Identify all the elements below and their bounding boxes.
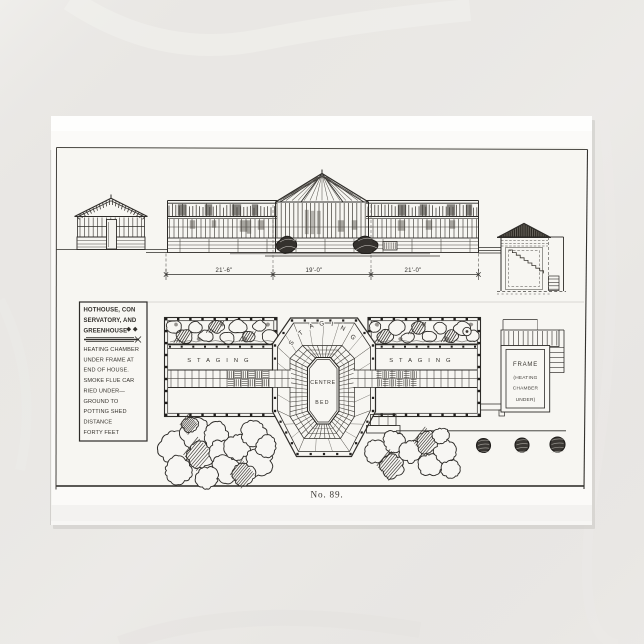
- svg-text:UNDER): UNDER): [516, 397, 536, 403]
- svg-text:HEATING CHAMBER: HEATING CHAMBER: [84, 347, 139, 353]
- svg-text:UNDER FRAME AT: UNDER FRAME AT: [84, 357, 135, 363]
- svg-text:END OF HOUSE.: END OF HOUSE.: [84, 368, 130, 374]
- svg-text:CENTRE: CENTRE: [310, 380, 336, 386]
- svg-text:FRAME: FRAME: [513, 362, 538, 368]
- svg-text:GROUND TO: GROUND TO: [84, 399, 119, 405]
- svg-text:GREENHOUSE: GREENHOUSE: [84, 329, 128, 335]
- svg-text:POTTING SHED: POTTING SHED: [84, 409, 127, 415]
- svg-text:19'-0": 19'-0": [305, 268, 322, 274]
- svg-text:BED: BED: [315, 400, 330, 406]
- svg-text:G: G: [319, 320, 325, 327]
- svg-text:CHAMBER: CHAMBER: [513, 386, 539, 392]
- svg-text:S T A G I N G: S T A G I N G: [187, 358, 251, 364]
- svg-text:RIED UNDER—: RIED UNDER—: [84, 388, 126, 394]
- svg-text:21'-6": 21'-6": [215, 268, 232, 274]
- svg-text:HOTHOUSE, CON: HOTHOUSE, CON: [84, 308, 136, 314]
- svg-text:SMOKE FLUE CAR: SMOKE FLUE CAR: [84, 378, 135, 384]
- svg-text:S T A G I N G: S T A G I N G: [389, 358, 453, 364]
- svg-text:(HEATING: (HEATING: [513, 375, 537, 381]
- svg-text:No. 89.: No. 89.: [311, 490, 344, 500]
- svg-text:DISTANCE: DISTANCE: [84, 419, 113, 425]
- svg-text:FORTY FEET: FORTY FEET: [84, 430, 120, 436]
- svg-text:21'-0": 21'-0": [404, 268, 421, 274]
- svg-text:SERVATORY, AND: SERVATORY, AND: [84, 318, 137, 324]
